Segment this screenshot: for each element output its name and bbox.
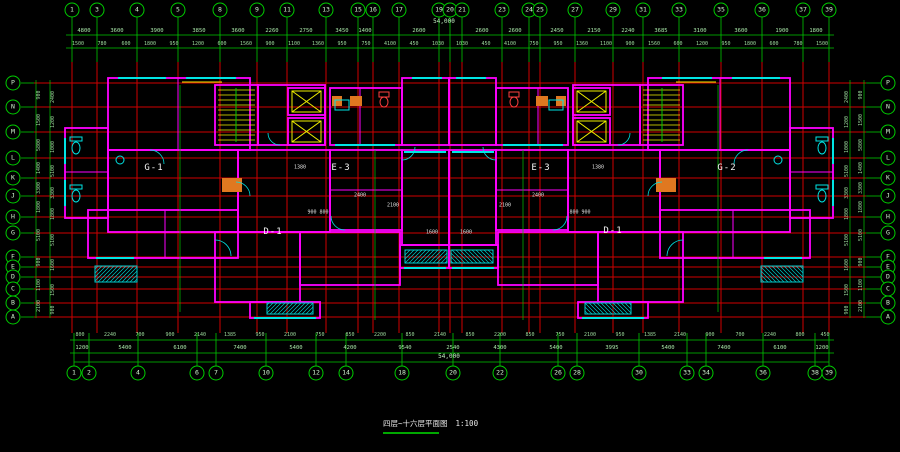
dim-bottom-detail: 850 bbox=[525, 332, 534, 338]
dim-left: 2100 bbox=[36, 300, 42, 312]
dim-bottom-detail: 800 bbox=[75, 332, 84, 338]
dim-right: 2100 bbox=[858, 300, 864, 312]
dim-bottom-detail: 800 bbox=[795, 332, 804, 338]
dim-bottom: 5400 bbox=[289, 345, 302, 351]
dim-bottom: 6100 bbox=[173, 345, 186, 351]
axis-bubble-left: H bbox=[6, 210, 21, 225]
axis-bubble-top: 3 bbox=[90, 3, 105, 18]
dim-bottom: 6100 bbox=[773, 345, 786, 351]
dim-top-detail: 1800 bbox=[144, 41, 156, 47]
dim-top-detail: 1560 bbox=[240, 41, 252, 47]
axis-bubble-top: 27 bbox=[568, 3, 583, 18]
axis-bubble-top: 8 bbox=[213, 3, 228, 18]
dim-interior: 2400 bbox=[354, 194, 366, 199]
dim-bottom-detail: 750 bbox=[315, 332, 324, 338]
dim-right: 2400 bbox=[844, 91, 850, 103]
dim-bottom-detail: 900 bbox=[705, 332, 714, 338]
dim-top-detail: 900 bbox=[625, 41, 634, 47]
unit-label: D-1 bbox=[263, 227, 282, 237]
axis-bubble-top: 17 bbox=[392, 3, 407, 18]
dim-top-detail: 780 bbox=[97, 41, 106, 47]
dim-bottom-detail: 2240 bbox=[764, 332, 776, 338]
dim-left: 900 bbox=[36, 257, 42, 266]
dim-top: 2600 bbox=[412, 28, 425, 34]
dim-left: 3300 bbox=[50, 187, 56, 199]
dim-top-detail: 1100 bbox=[288, 41, 300, 47]
dim-bottom-detail: 950 bbox=[255, 332, 264, 338]
dim-top-detail: 950 bbox=[553, 41, 562, 47]
axis-bubble-left: N bbox=[6, 100, 21, 115]
axis-bubble-bottom: 26 bbox=[551, 366, 566, 381]
dim-left: 1100 bbox=[36, 279, 42, 291]
dim-bottom-detail: 700 bbox=[135, 332, 144, 338]
dim-right: 1100 bbox=[858, 279, 864, 291]
dim-interior: 1380 bbox=[294, 166, 306, 171]
dim-bottom-detail: 850 bbox=[465, 332, 474, 338]
dim-top: 3100 bbox=[693, 28, 706, 34]
dim-top-detail: 1560 bbox=[648, 41, 660, 47]
dim-top-detail: 1500 bbox=[816, 41, 828, 47]
dim-bottom-detail: 2140 bbox=[194, 332, 206, 338]
axis-bubble-top: 1 bbox=[65, 3, 80, 18]
axis-bubble-right: P bbox=[881, 76, 896, 91]
dim-bottom: 5400 bbox=[118, 345, 131, 351]
dim-bottom: 7400 bbox=[233, 345, 246, 351]
axis-bubble-bottom: 36 bbox=[756, 366, 771, 381]
dim-top-detail: 450 bbox=[409, 41, 418, 47]
dim-top-detail: 600 bbox=[769, 41, 778, 47]
dim-top: 2450 bbox=[550, 28, 563, 34]
axis-bubble-top: 37 bbox=[796, 3, 811, 18]
dim-bottom: 4200 bbox=[343, 345, 356, 351]
dim-interior: 1380 bbox=[592, 166, 604, 171]
dim-bottom-detail: 850 bbox=[405, 332, 414, 338]
axis-grid-layer bbox=[21, 17, 881, 366]
dim-right: 1000 bbox=[844, 141, 850, 153]
dim-right: 5100 bbox=[858, 229, 864, 241]
axis-bubble-bottom: 14 bbox=[339, 366, 354, 381]
dim-top-detail: 1360 bbox=[576, 41, 588, 47]
dim-top: 3685 bbox=[654, 28, 667, 34]
dim-right: 1200 bbox=[844, 116, 850, 128]
dim-left: 1500 bbox=[36, 114, 42, 126]
dim-top: 2240 bbox=[621, 28, 634, 34]
unit-label: G-2 bbox=[717, 163, 736, 173]
dim-top-detail: 1030 bbox=[432, 41, 444, 47]
axis-bubble-top: 11 bbox=[280, 3, 295, 18]
axis-bubble-top: 5 bbox=[171, 3, 186, 18]
dim-bottom-detail: 2100 bbox=[584, 332, 596, 338]
dim-top: 3600 bbox=[110, 28, 123, 34]
dim-top: 2260 bbox=[265, 28, 278, 34]
axis-bubble-bottom: 4 bbox=[131, 366, 146, 381]
caption-underline bbox=[383, 432, 439, 434]
axis-bubble-bottom: 12 bbox=[309, 366, 324, 381]
dim-top: 1800 bbox=[809, 28, 822, 34]
dim-bottom: 9540 bbox=[398, 345, 411, 351]
axis-bubble-bottom: 39 bbox=[822, 366, 837, 381]
unit-label: D-1 bbox=[603, 226, 622, 236]
cad-viewport[interactable]: 1345891113151617192021232425272931333536… bbox=[0, 0, 900, 452]
dim-right: 1600 bbox=[844, 259, 850, 271]
dim-top-detail: 750 bbox=[529, 41, 538, 47]
dim-bottom-detail: 2140 bbox=[434, 332, 446, 338]
dim-bottom-detail: 2240 bbox=[104, 332, 116, 338]
axis-bubble-bottom: 20 bbox=[446, 366, 461, 381]
dim-bottom-detail: 750 bbox=[555, 332, 564, 338]
dim-top-detail: 600 bbox=[673, 41, 682, 47]
dim-top-detail: 1200 bbox=[192, 41, 204, 47]
dim-top: 3600 bbox=[231, 28, 244, 34]
unit-label: G-1 bbox=[144, 163, 163, 173]
dim-bottom: 7400 bbox=[717, 345, 730, 351]
dim-top-detail: 1500 bbox=[72, 41, 84, 47]
dim-left: 3300 bbox=[36, 182, 42, 194]
dim-top-detail: 1030 bbox=[456, 41, 468, 47]
axis-bubble-right: M bbox=[881, 125, 896, 140]
dim-right: 1500 bbox=[858, 114, 864, 126]
axis-bubble-right: K bbox=[881, 171, 896, 186]
dim-left: 1800 bbox=[50, 208, 56, 220]
dim-right: 900 bbox=[844, 305, 850, 314]
dim-bottom: 4300 bbox=[493, 345, 506, 351]
dim-right: 1800 bbox=[858, 201, 864, 213]
dim-left: 5800 bbox=[36, 139, 42, 151]
dim-top-detail: 600 bbox=[121, 41, 130, 47]
axis-bubble-left: G bbox=[6, 226, 21, 241]
axis-bubble-top: 9 bbox=[250, 3, 265, 18]
axis-bubble-top: 21 bbox=[455, 3, 470, 18]
dim-left: 1800 bbox=[36, 201, 42, 213]
dim-top: 2600 bbox=[508, 28, 521, 34]
dim-left: 2400 bbox=[50, 91, 56, 103]
drawing-layer bbox=[0, 0, 900, 452]
axis-bubble-bottom: 33 bbox=[680, 366, 695, 381]
unit-label: E-3 bbox=[531, 163, 550, 173]
dim-right: 5800 bbox=[858, 139, 864, 151]
axis-bubble-bottom: 2 bbox=[82, 366, 97, 381]
axis-bubble-top: 25 bbox=[533, 3, 548, 18]
axis-bubble-top: 35 bbox=[714, 3, 729, 18]
dim-right: 900 bbox=[858, 90, 864, 99]
dim-interior: 1600 bbox=[460, 231, 472, 236]
dim-right: 1400 bbox=[858, 162, 864, 174]
dim-bottom-detail: 1385 bbox=[644, 332, 656, 338]
axis-bubble-bottom: 34 bbox=[699, 366, 714, 381]
dim-left: 5100 bbox=[50, 234, 56, 246]
dim-top: 2750 bbox=[299, 28, 312, 34]
axis-bubble-left: C bbox=[6, 282, 21, 297]
dim-interior: 2100 bbox=[499, 204, 511, 209]
axis-bubble-bottom: 6 bbox=[190, 366, 205, 381]
dim-right: 1800 bbox=[844, 208, 850, 220]
dim-top-detail: 950 bbox=[721, 41, 730, 47]
dim-bottom-detail: 450 bbox=[820, 332, 829, 338]
dim-bottom-detail: 950 bbox=[615, 332, 624, 338]
axis-bubble-bottom: 7 bbox=[209, 366, 224, 381]
dim-bottom: 3995 bbox=[605, 345, 618, 351]
dim-top-detail: 1200 bbox=[696, 41, 708, 47]
dim-left: 1000 bbox=[50, 141, 56, 153]
dim-left: 5100 bbox=[36, 229, 42, 241]
dim-top-detail: 950 bbox=[169, 41, 178, 47]
dim-top: 2600 bbox=[475, 28, 488, 34]
dim-top: 1400 bbox=[358, 28, 371, 34]
dim-interior: 2100 bbox=[387, 204, 399, 209]
dim-bottom: 2540 bbox=[446, 345, 459, 351]
axis-bubble-bottom: 22 bbox=[493, 366, 508, 381]
dim-interior: 2400 bbox=[532, 194, 544, 199]
dim-total-top: 54,000 bbox=[433, 19, 455, 25]
dim-top-detail: 780 bbox=[793, 41, 802, 47]
dim-bottom-detail: 850 bbox=[345, 332, 354, 338]
dim-right: 1500 bbox=[844, 284, 850, 296]
axis-bubble-left: B bbox=[6, 296, 21, 311]
dim-bottom-detail: 2140 bbox=[674, 332, 686, 338]
axis-bubble-top: 31 bbox=[636, 3, 651, 18]
axis-bubble-right: H bbox=[881, 210, 896, 225]
dim-top-detail: 900 bbox=[265, 41, 274, 47]
axis-bubble-top: 15 bbox=[351, 3, 366, 18]
axis-bubble-top: 29 bbox=[606, 3, 621, 18]
axis-bubble-top: 13 bbox=[319, 3, 334, 18]
dim-top-detail: 750 bbox=[361, 41, 370, 47]
axis-bubble-right: G bbox=[881, 226, 896, 241]
axis-bubble-top: 4 bbox=[130, 3, 145, 18]
dim-top-detail: 950 bbox=[337, 41, 346, 47]
axis-bubble-right: N bbox=[881, 100, 896, 115]
dim-bottom: 1200 bbox=[75, 345, 88, 351]
dim-top-detail: 1360 bbox=[312, 41, 324, 47]
axis-bubble-bottom: 28 bbox=[570, 366, 585, 381]
dim-right: 5100 bbox=[844, 234, 850, 246]
dim-left: 900 bbox=[50, 305, 56, 314]
dim-top: 3450 bbox=[335, 28, 348, 34]
axis-bubble-left: L bbox=[6, 151, 21, 166]
axis-bubble-right: L bbox=[881, 151, 896, 166]
dim-bottom-detail: 2200 bbox=[494, 332, 506, 338]
axis-bubble-right: A bbox=[881, 310, 896, 325]
dim-top: 3900 bbox=[150, 28, 163, 34]
dim-right: 3300 bbox=[844, 187, 850, 199]
axis-bubble-top: 36 bbox=[755, 3, 770, 18]
dim-bottom: 5400 bbox=[549, 345, 562, 351]
axis-bubble-top: 33 bbox=[672, 3, 687, 18]
dim-bottom-detail: 900 bbox=[165, 332, 174, 338]
axis-bubble-top: 16 bbox=[366, 3, 381, 18]
caption-scale: 1:100 bbox=[456, 419, 479, 428]
axis-bubble-top: 23 bbox=[495, 3, 510, 18]
dim-interior: 900 800 bbox=[307, 211, 328, 216]
dim-right: 3300 bbox=[858, 182, 864, 194]
dim-left: 1400 bbox=[36, 162, 42, 174]
dim-interior: 1600 bbox=[426, 231, 438, 236]
dim-left: 1500 bbox=[50, 284, 56, 296]
dim-top-detail: 1800 bbox=[744, 41, 756, 47]
axis-bubble-left: P bbox=[6, 76, 21, 91]
dim-top: 3600 bbox=[734, 28, 747, 34]
dim-top-detail: 4100 bbox=[384, 41, 396, 47]
dim-top-detail: 600 bbox=[217, 41, 226, 47]
dim-bottom-detail: 700 bbox=[735, 332, 744, 338]
dim-bottom: 5400 bbox=[661, 345, 674, 351]
dim-left: 1200 bbox=[50, 116, 56, 128]
dim-top-detail: 450 bbox=[481, 41, 490, 47]
axis-bubble-right: J bbox=[881, 189, 896, 204]
dim-left: 900 bbox=[36, 90, 42, 99]
axis-bubble-left: K bbox=[6, 171, 21, 186]
axis-bubble-bottom: 1 bbox=[67, 366, 82, 381]
dim-top: 2150 bbox=[587, 28, 600, 34]
axis-bubble-bottom: 38 bbox=[808, 366, 823, 381]
axis-bubble-left: M bbox=[6, 125, 21, 140]
caption-title: 四层~十六层平面图 bbox=[383, 419, 448, 428]
dim-total-bottom: 54,000 bbox=[438, 354, 460, 360]
dim-left: 1600 bbox=[50, 259, 56, 271]
axis-bubble-bottom: 18 bbox=[395, 366, 410, 381]
dim-right: 5100 bbox=[844, 165, 850, 177]
drawing-caption: 四层~十六层平面图1:100 bbox=[383, 418, 478, 429]
axis-bubble-top: 39 bbox=[822, 3, 837, 18]
dim-bottom-detail: 2200 bbox=[374, 332, 386, 338]
unit-label: E-3 bbox=[331, 163, 350, 173]
dim-top: 4800 bbox=[77, 28, 90, 34]
axis-bubble-left: J bbox=[6, 189, 21, 204]
axis-bubble-right: B bbox=[881, 296, 896, 311]
axis-bubble-bottom: 30 bbox=[632, 366, 647, 381]
axis-bubble-right: C bbox=[881, 282, 896, 297]
dim-bottom-detail: 1385 bbox=[224, 332, 236, 338]
dim-right: 900 bbox=[858, 257, 864, 266]
dim-top-detail: 4100 bbox=[504, 41, 516, 47]
dim-top: 1900 bbox=[775, 28, 788, 34]
dim-top-detail: 1100 bbox=[600, 41, 612, 47]
axis-bubble-left: A bbox=[6, 310, 21, 325]
dim-left: 5100 bbox=[50, 165, 56, 177]
dim-interior: 800 900 bbox=[569, 211, 590, 216]
dim-bottom-detail: 2100 bbox=[284, 332, 296, 338]
dim-top: 3850 bbox=[192, 28, 205, 34]
axis-bubble-bottom: 10 bbox=[259, 366, 274, 381]
dim-bottom: 1200 bbox=[815, 345, 828, 351]
